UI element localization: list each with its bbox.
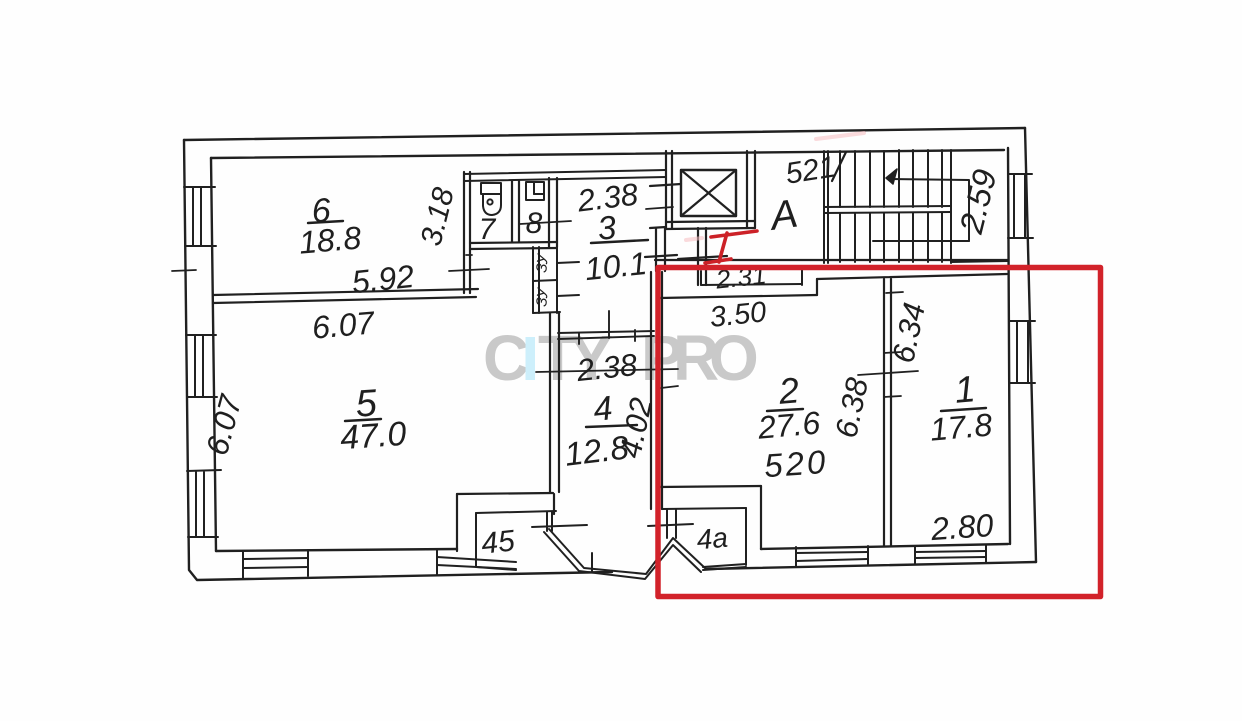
svg-text:6.38: 6.38 (828, 374, 875, 441)
svg-text:6.07: 6.07 (310, 304, 376, 345)
svg-text:5.92: 5.92 (350, 258, 416, 300)
svg-text:18.8: 18.8 (297, 219, 362, 260)
svg-text:4a: 4a (695, 522, 729, 556)
svg-text:8: 8 (526, 207, 543, 240)
svg-text:3.50: 3.50 (708, 296, 767, 334)
svg-text:ЗУ: ЗУ (533, 252, 552, 273)
svg-text:C: C (483, 322, 529, 394)
svg-text:7: 7 (479, 213, 497, 246)
svg-text:521: 521 (783, 150, 838, 190)
svg-text:17.8: 17.8 (928, 406, 993, 447)
svg-text:4.02: 4.02 (612, 395, 659, 461)
svg-text:3.18: 3.18 (415, 184, 461, 249)
svg-text:4: 4 (591, 389, 614, 429)
svg-text:520: 520 (763, 443, 829, 484)
svg-text:10.1: 10.1 (583, 245, 649, 287)
svg-text:А: А (766, 191, 801, 239)
svg-text:27.6: 27.6 (755, 404, 821, 445)
svg-text:2.59: 2.59 (952, 166, 1004, 238)
svg-text:6.07: 6.07 (199, 390, 249, 459)
svg-text:6.34: 6.34 (885, 300, 932, 366)
svg-text:ЗУ: ЗУ (533, 286, 552, 307)
svg-text:2.80: 2.80 (929, 507, 995, 547)
svg-text:2.38: 2.38 (574, 347, 639, 388)
svg-text:1: 1 (953, 368, 977, 411)
svg-text:45: 45 (480, 524, 517, 560)
svg-text:47.0: 47.0 (339, 415, 408, 458)
